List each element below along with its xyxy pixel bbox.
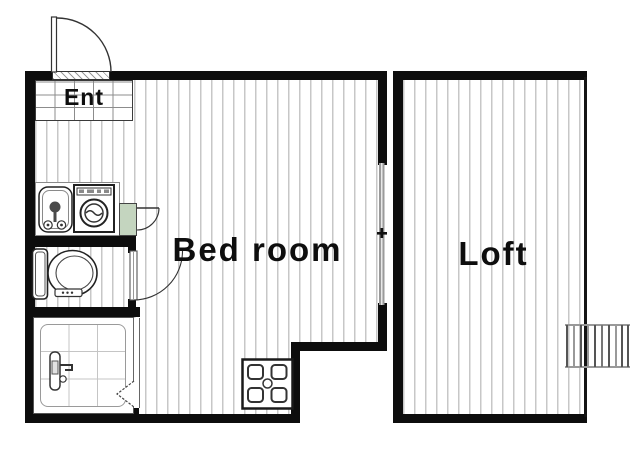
- entry-door: [50, 14, 113, 75]
- toilet: [31, 247, 99, 301]
- shower-mixer: [46, 348, 76, 394]
- refrigerator-cabinet: [119, 203, 137, 236]
- loft-ladder: [565, 322, 630, 370]
- loft-label: Loft: [403, 237, 584, 270]
- cabinet-door: [136, 202, 164, 235]
- wall: [25, 414, 300, 423]
- washing-machine-pan: [241, 358, 294, 410]
- kitchen-sink: [38, 186, 73, 233]
- wall: [378, 303, 387, 351]
- wall: [291, 342, 387, 351]
- entrance-label: Ent: [35, 86, 133, 109]
- wall: [393, 414, 587, 423]
- floor-plan: Ent: [0, 0, 639, 450]
- wall: [25, 236, 136, 247]
- wall: [393, 71, 587, 80]
- wall: [378, 71, 387, 165]
- wall: [393, 71, 403, 423]
- bedroom-label: Bed room: [125, 233, 390, 266]
- wall: [110, 71, 387, 80]
- shower-folding-door: [114, 379, 136, 409]
- wall: [25, 307, 140, 317]
- washing-machine: [73, 184, 115, 233]
